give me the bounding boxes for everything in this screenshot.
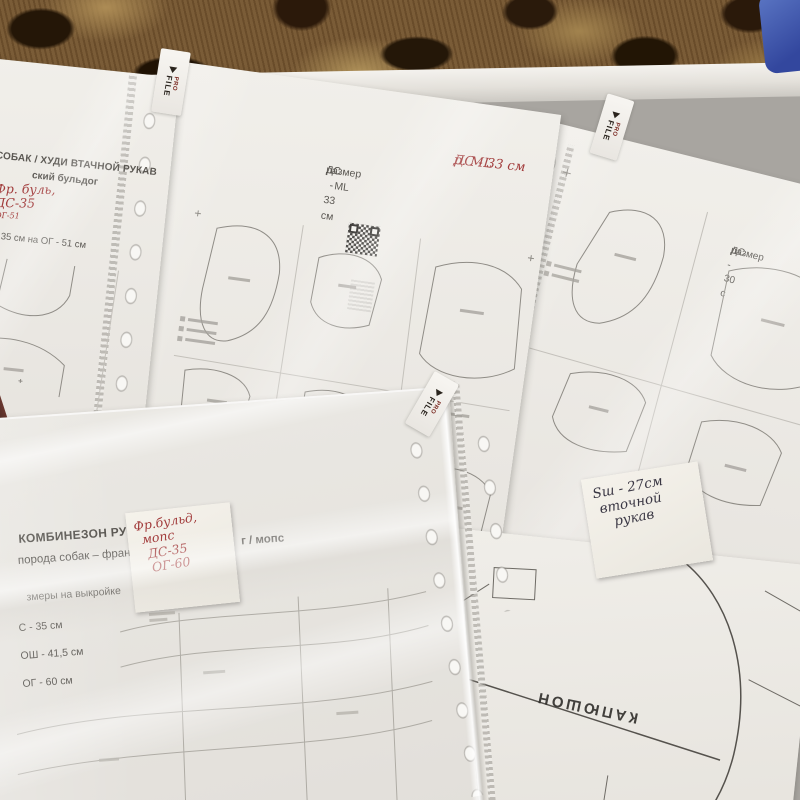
brand-words: PRO FILE: [162, 75, 179, 98]
title-fragment: г / мопс: [241, 530, 285, 550]
sticky-note-pen: Sш - 27см вточной рукав: [581, 461, 713, 578]
size-line: С - 35 см на ОГ - 51 см: [0, 229, 87, 253]
handwritten-size: р. ML: [453, 154, 493, 173]
bird-logo-icon: [433, 389, 443, 398]
bird-logo-icon: [168, 66, 177, 73]
handwritten-note: Фр. буль, ДС-35 ОГ-51: [0, 182, 56, 221]
sticky-note-text: Фр.бульд, мопс ДС-35 ОГ-60: [132, 510, 204, 577]
breed-line: порода собак – фран: [17, 545, 131, 570]
photo-scene: размер ДС - 30 с размер ML ДС: [0, 0, 800, 800]
brand-words: PRO FILE: [418, 395, 441, 420]
handwritten-girth: ОГ-51: [0, 211, 55, 221]
brand-words: PRO FILE: [601, 119, 621, 144]
profile-logo: PRO FILE: [162, 66, 181, 98]
pattern-diagram-faint: [0, 585, 445, 800]
handwritten-length: ДС-35: [0, 196, 55, 211]
measurements-header: змеры на выкройке: [26, 584, 121, 606]
sticky-note-red: Фр.бульд, мопс ДС-35 ОГ-60: [125, 502, 240, 612]
profile-logo: PRO FILE: [601, 110, 623, 143]
bird-logo-icon: [611, 111, 620, 119]
blue-object: [758, 0, 800, 74]
sticky-note-text: Sш - 27см вточной рукав: [591, 474, 670, 533]
handwritten-note: р. ML ДС - 33 см: [453, 154, 526, 176]
